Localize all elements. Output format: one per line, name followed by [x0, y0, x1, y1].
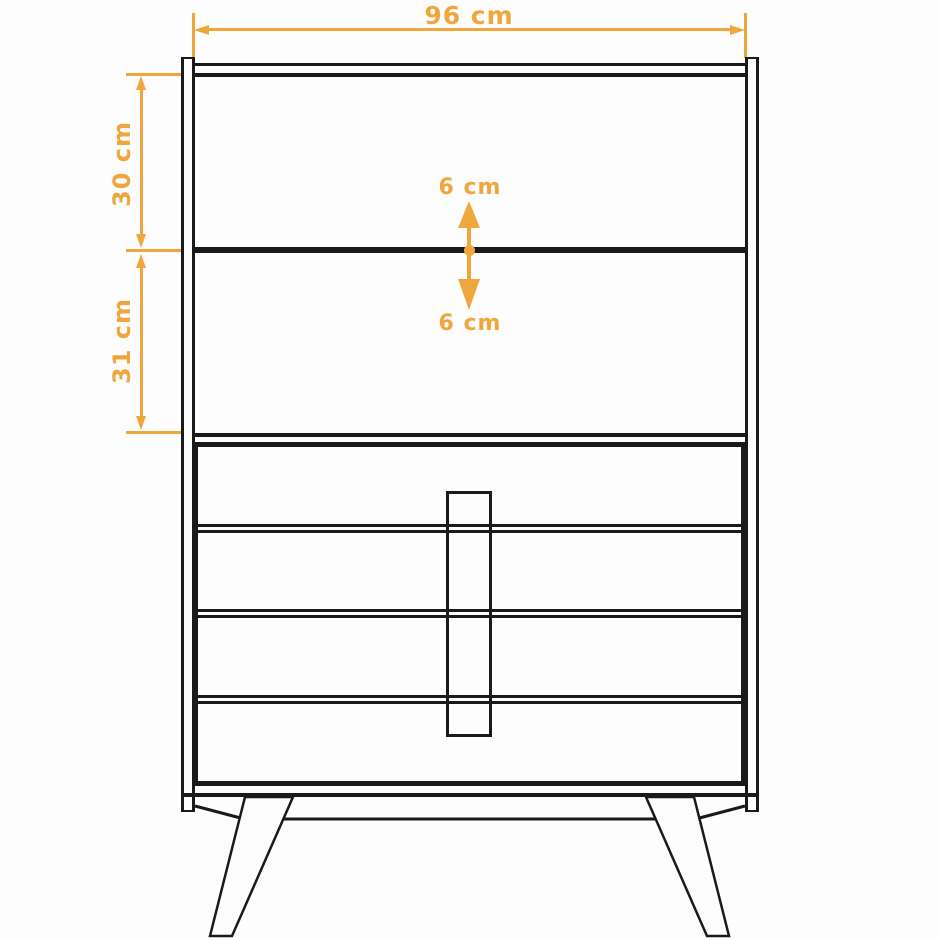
- shelf-clearance-up-arrow-icon: [458, 201, 480, 228]
- shelf-clearance-down-arrow-icon: [458, 279, 480, 310]
- front-leg-left: [210, 797, 293, 936]
- furniture-dimension-diagram: 96 cm 30 cm 31 cm: [0, 0, 940, 940]
- shelf-clearance-down-stem: [467, 255, 471, 280]
- shelf-clearance-down-label: 6 cm: [390, 313, 550, 335]
- front-leg-right: [646, 797, 729, 936]
- shelf-clearance-up-label: 6 cm: [390, 177, 550, 199]
- legs-assembly: [0, 0, 940, 940]
